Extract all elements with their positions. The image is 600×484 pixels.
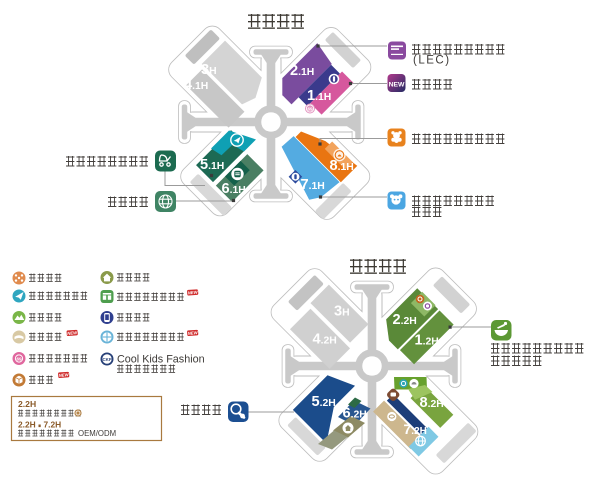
svg-text:NEW: NEW [389, 82, 405, 89]
svg-text:OEM/ODM: OEM/ODM [78, 429, 116, 438]
svg-text:2.2H: 2.2H [18, 399, 36, 409]
svg-text:69: 69 [307, 107, 313, 112]
svg-text:CKF: CKF [102, 357, 111, 362]
svg-text:NEW: NEW [59, 372, 70, 378]
svg-text:2.2H: 2.2H [18, 420, 36, 430]
svg-text:69: 69 [16, 357, 22, 362]
svg-text:(LEC): (LEC) [413, 55, 451, 67]
svg-text:7.2H: 7.2H [44, 420, 62, 430]
svg-text:NEW: NEW [188, 330, 199, 336]
svg-text:NEW: NEW [188, 290, 199, 296]
svg-text:Cool Kids Fashion: Cool Kids Fashion [117, 354, 205, 366]
svg-text:NEW: NEW [67, 330, 78, 336]
